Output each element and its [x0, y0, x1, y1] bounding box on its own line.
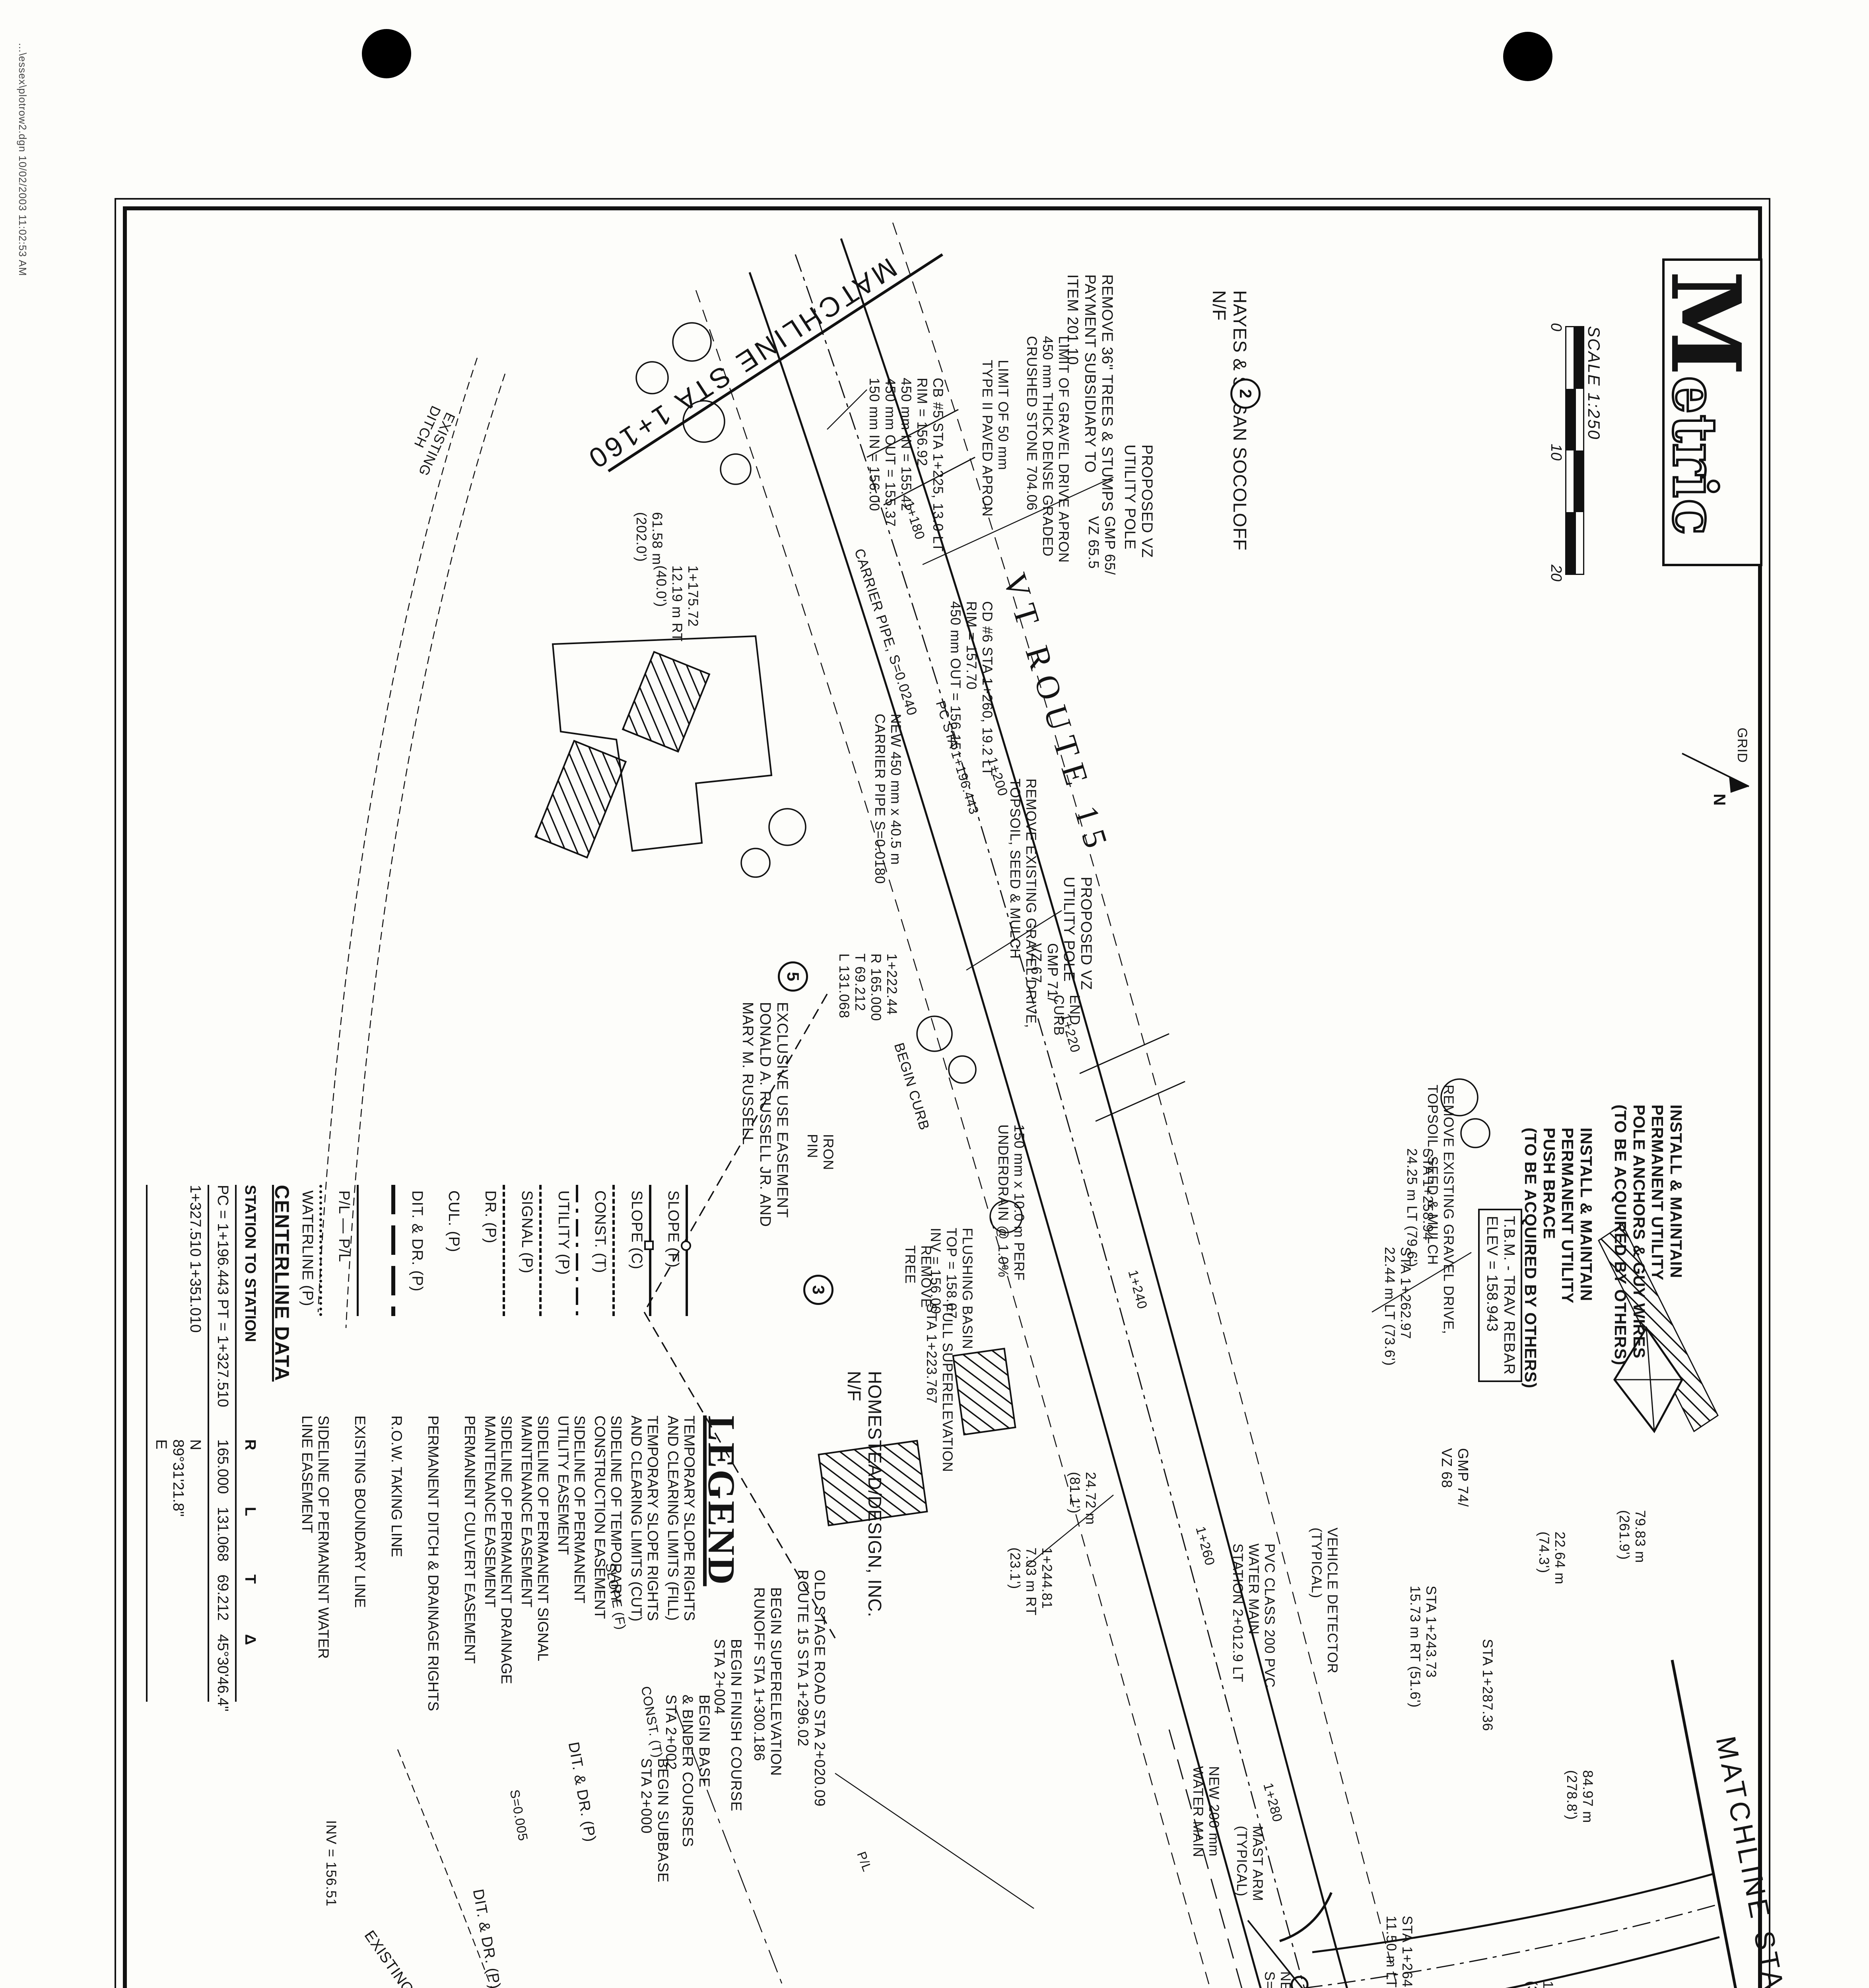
centerline-cell: 69.212	[214, 1574, 231, 1634]
legend-row: SLOPE (F)TEMPORARY SLOPE RIGHTS AND CLEA…	[661, 1185, 697, 1773]
legend-line-sample	[534, 1185, 542, 1316]
callout-text: IRON PIN	[804, 1134, 836, 1171]
callout-text: INV = 156.51	[323, 1820, 339, 1906]
centerline-table-row: STATION TO STATIONRLTΔ	[237, 1185, 262, 1702]
legend-line-sample	[464, 1185, 468, 1316]
oldstage-centerline	[1304, 1905, 1718, 1988]
callout-text: HOMESTEAD/DESIGN, INC. N/F	[843, 1371, 885, 1617]
building	[535, 741, 626, 858]
legend-row: WATERLINE (P)SIDELINE OF PERMANENT WATER…	[295, 1185, 332, 1773]
callout-text: FULL SUPERELEVATION STA 1+223.767	[923, 1303, 955, 1472]
callout-text: 79.83 m (261.9')	[1616, 1510, 1648, 1563]
legend-row: DIT. & DR. (P)PERMANENT DITCH & DRAINAGE…	[405, 1185, 441, 1773]
scale-bar-row	[1575, 326, 1584, 575]
callout-text: BEGIN FINISH COURSE STA 2+004	[711, 1639, 744, 1811]
callout-text: EXCLUSIVE USE EASEMENT DONALD A. RUSSELL…	[739, 1002, 791, 1227]
legend-key: P/L — P/L	[335, 1190, 352, 1262]
legend-row: P/L — P/LEXISTING BOUNDARY LINE	[332, 1185, 368, 1773]
legend-description: TEMPORARY SLOPE RIGHTS AND CLEARING LIMI…	[664, 1415, 697, 1621]
legend-line-sample	[357, 1185, 359, 1316]
legend-line-sample	[644, 1185, 651, 1316]
building	[623, 652, 709, 752]
callout-text: STA 1+262.97 22.44 m LT (73.6')	[1381, 1247, 1413, 1366]
legend-description: SIDELINE OF PERMANENT DRAINAGE MAINTENAN…	[482, 1415, 515, 1684]
metric-logo-etric: etric	[1665, 376, 1724, 536]
callout-text: 1+244.81 7.03 m RT (23.1')	[1007, 1547, 1055, 1616]
callout-text: 22.64 m (74.3')	[1536, 1532, 1568, 1584]
centerline-cell: 45°30'46.4"	[214, 1634, 231, 1702]
callout-text: 1+222.44 R 165.000 T 69.212 L 131.068	[836, 953, 900, 1021]
callout-text: HAYES & SUSAN SOCOLOFF N/F	[1208, 290, 1250, 551]
north-label: N	[1710, 794, 1729, 806]
callout-text: MAST ARM (TYPICAL)	[1234, 1826, 1265, 1901]
parcel-ref-circle: 3	[803, 1275, 833, 1305]
legend-line-sample	[608, 1185, 615, 1316]
metric-logo-box: M etric	[1662, 258, 1762, 566]
ditch-line	[318, 358, 477, 1312]
centerline-table-row: PC = 1+196.443 PT = 1+327.510165.000131.…	[209, 1185, 237, 1702]
callout-text: STA 1+287.36	[1479, 1639, 1495, 1731]
callout-text: LIMIT OF 50 mm TYPE II PAVED APRON	[979, 360, 1011, 517]
centerline-table-row: 1+327.510 1+351.010N 89°31'21.8" E	[146, 1185, 209, 1702]
legend-line-sample	[391, 1185, 395, 1316]
callout-text: BEGIN SUBBASE STA 2+000	[638, 1758, 671, 1883]
callout-text: 24.72 m (81.1')	[1067, 1472, 1098, 1525]
legend-description: SIDELINE OF PERMANENT WATER LINE EASEMEN…	[299, 1415, 332, 1659]
legend-title: LEGEND	[699, 1415, 744, 1586]
scale-tick: 20	[1547, 565, 1564, 581]
callout-text: INSTALL & MAINTAIN PERMANENT UTILITY PUS…	[1521, 1128, 1595, 1388]
legend-line-sample	[681, 1185, 688, 1316]
building	[953, 1349, 1016, 1435]
legend-description: EXISTING BOUNDARY LINE	[352, 1415, 368, 1608]
legend-row: CUL. (P)PERMANENT CULVERT EASEMENT	[441, 1185, 478, 1773]
callout-text: BEGIN SUPERELEVATION RUNOFF STA 1+300.18…	[751, 1587, 784, 1776]
legend-row: R.O.W. TAKING LINE	[368, 1185, 405, 1773]
legend-description: PERMANENT DITCH & DRAINAGE RIGHTS	[425, 1415, 441, 1711]
callout-text: NEW 450 mm CMP S=0.0102	[1261, 1971, 1293, 1988]
callout-text: INSTALL & MAINTAIN PERMANENT UTILITY POL…	[1611, 1105, 1685, 1365]
centerline-cell: 1+327.510 1+351.010	[152, 1185, 204, 1439]
legend-line-sample	[576, 1185, 578, 1316]
centerline-cell: Δ	[241, 1634, 258, 1702]
callout-text: REMOVE 36" TREES & STUMPS PAYMENT SUBSID…	[1064, 274, 1115, 512]
legend-key: DIT. & DR. (P)	[408, 1190, 425, 1292]
callout-text: OLD STAGE ROAD STA 2+020.09 ROUTE 15 STA…	[795, 1570, 828, 1807]
scanned-plan-sheet: M etric SCALE 1:250 0 10 20 GRID N VT RO…	[0, 0, 1869, 1988]
callout-text: GMP 65/ VZ 65.5	[1086, 516, 1118, 575]
callout-text: STA 1+264.80 11.50 m LT (37.7')	[1383, 1916, 1415, 1988]
legend-row: UTILITY (P)SIDELINE OF PERMANENT UTILITY…	[551, 1185, 588, 1773]
callout-text: 61.58 m (202.0')	[633, 512, 665, 565]
drawing-canvas: M etric SCALE 1:250 0 10 20 GRID N VT RO…	[0, 0, 1869, 1988]
legend-row: SLOPE (C)TEMPORARY SLOPE RIGHTS AND CLEA…	[624, 1185, 661, 1773]
callout-text: 114.47 m (375.6')	[1524, 1981, 1556, 1988]
ditch-line	[398, 1749, 676, 1988]
legend-key: DR. (P)	[482, 1190, 499, 1244]
legend-row: CONST. (T)SIDELINE OF TEMPORARY CONSTRUC…	[588, 1185, 624, 1773]
scan-filename-note: ...\essex\plotrow2.dgn 10/02/2003 11:02:…	[16, 43, 29, 276]
centerline-data-title: CENTERLINE DATA	[270, 1185, 293, 1382]
callout-text: PVC CLASS 200 PVC WATER MAIN STATION 2+0…	[1230, 1543, 1277, 1688]
legend-line-sample	[498, 1185, 505, 1316]
metric-logo-m: M	[1665, 270, 1747, 376]
callout-text: GMP 74/ VZ 68	[1439, 1448, 1471, 1507]
legend-description: TEMPORARY SLOPE RIGHTS AND CLEARING LIMI…	[628, 1415, 661, 1621]
legend-key: UTILITY (P)	[555, 1190, 572, 1275]
scale-bar: SCALE 1:250 0 10 20	[1548, 326, 1603, 604]
callout-text: PROPOSED VZ UTILITY POLE	[1060, 877, 1094, 990]
legend-description: R.O.W. TAKING LINE	[389, 1415, 405, 1557]
scale-label: SCALE 1:250	[1584, 326, 1603, 604]
legend-row: DR. (P)SIDELINE OF PERMANENT DRAINAGE MA…	[478, 1185, 515, 1773]
oldstage-edge-east	[1297, 1937, 1719, 1988]
centerline-cell: T	[241, 1574, 258, 1634]
legend-row: SIGNAL (P)SIDELINE OF PERMANENT SIGNAL M…	[515, 1185, 551, 1773]
scale-bar-row	[1565, 326, 1575, 575]
punch-hole	[362, 29, 411, 78]
centerline-cell	[152, 1507, 204, 1574]
callout-text: 84.97 m (278.8')	[1564, 1770, 1595, 1823]
callout-text: 1+175.72 12.19 m RT (40.0')	[653, 565, 701, 642]
plan-linework	[0, 0, 1869, 1988]
parcel-ref-circle: 5	[778, 961, 808, 992]
callout-text: VEHICLE DETECTOR (TYPICAL)	[1308, 1528, 1340, 1673]
callout-text: STA 1+243.73 15.73 m RT (51.6')	[1407, 1586, 1439, 1708]
callout-text: CB #5 STA 1+225, 13.0 LT RIM = 156.92 45…	[867, 378, 946, 552]
legend-line-sample	[427, 1185, 432, 1316]
centerline-data-table: STATION TO STATIONRLTΔPC = 1+196.443 PT …	[146, 1185, 262, 1702]
legend-key: SIGNAL (P)	[518, 1190, 535, 1274]
legend-key: CONST. (T)	[591, 1190, 608, 1273]
driveway-edge	[1080, 1034, 1169, 1074]
centerline-cell: STATION TO STATION	[241, 1185, 258, 1439]
legend-description: SIDELINE OF PERMANENT SIGNAL MAINTENANCE…	[518, 1415, 551, 1661]
centerline-cell: 165.000	[214, 1439, 231, 1507]
scale-ticks: 0 10 20	[1548, 326, 1565, 573]
centerline-cell: R	[241, 1439, 258, 1507]
grid-label: GRID	[1734, 728, 1750, 763]
centerline-cell: N 89°31'21.8" E	[152, 1439, 204, 1507]
callout-text: NEW 450 mm x 40.5 m CARRIER PIPE S=0.018…	[872, 714, 903, 884]
callout-text: PROPOSED VZ UTILITY POLE	[1121, 445, 1155, 558]
callout-text: LIMIT OF GRAVEL DRIVE APRON 450 mm THICK…	[1024, 336, 1071, 563]
parcel-ref-circle: 2	[1230, 379, 1261, 409]
centerline-cell	[152, 1634, 204, 1702]
legend-key: WATERLINE (P)	[299, 1190, 316, 1307]
legend-description: SIDELINE OF PERMANENT UTILITY EASEMENT	[555, 1415, 588, 1604]
legend-description: PERMANENT CULVERT EASEMENT	[462, 1415, 478, 1664]
callout-text: NEW 200 mm WATER MAIN	[1190, 1766, 1222, 1858]
scale-tick: 0	[1547, 323, 1564, 331]
oldstage-edge-west	[1312, 1873, 1715, 1952]
callout-text: GMP 71/ VZ 67	[1028, 943, 1061, 1002]
legend-key: SLOPE (F)	[664, 1190, 682, 1268]
callout-text: REMOVE TREE	[902, 1245, 934, 1308]
centerline-cell: 131.068	[214, 1507, 231, 1574]
callout-text: T.B.M. - TRAV REBAR ELEV = 158.943	[1478, 1209, 1522, 1382]
callout-text: 150 mm x 10.0 m PERF UNDERDRAIN @ 1.0%	[995, 1124, 1027, 1281]
punch-hole	[1503, 32, 1552, 81]
scale-tick: 10	[1547, 444, 1564, 460]
centerline-cell	[152, 1574, 204, 1634]
centerline-cell: PC = 1+196.443 PT = 1+327.510	[214, 1185, 231, 1439]
centerline-cell: L	[241, 1507, 258, 1574]
legend-key: CUL. (P)	[445, 1190, 462, 1252]
legend-key: SLOPE (C)	[628, 1190, 645, 1270]
